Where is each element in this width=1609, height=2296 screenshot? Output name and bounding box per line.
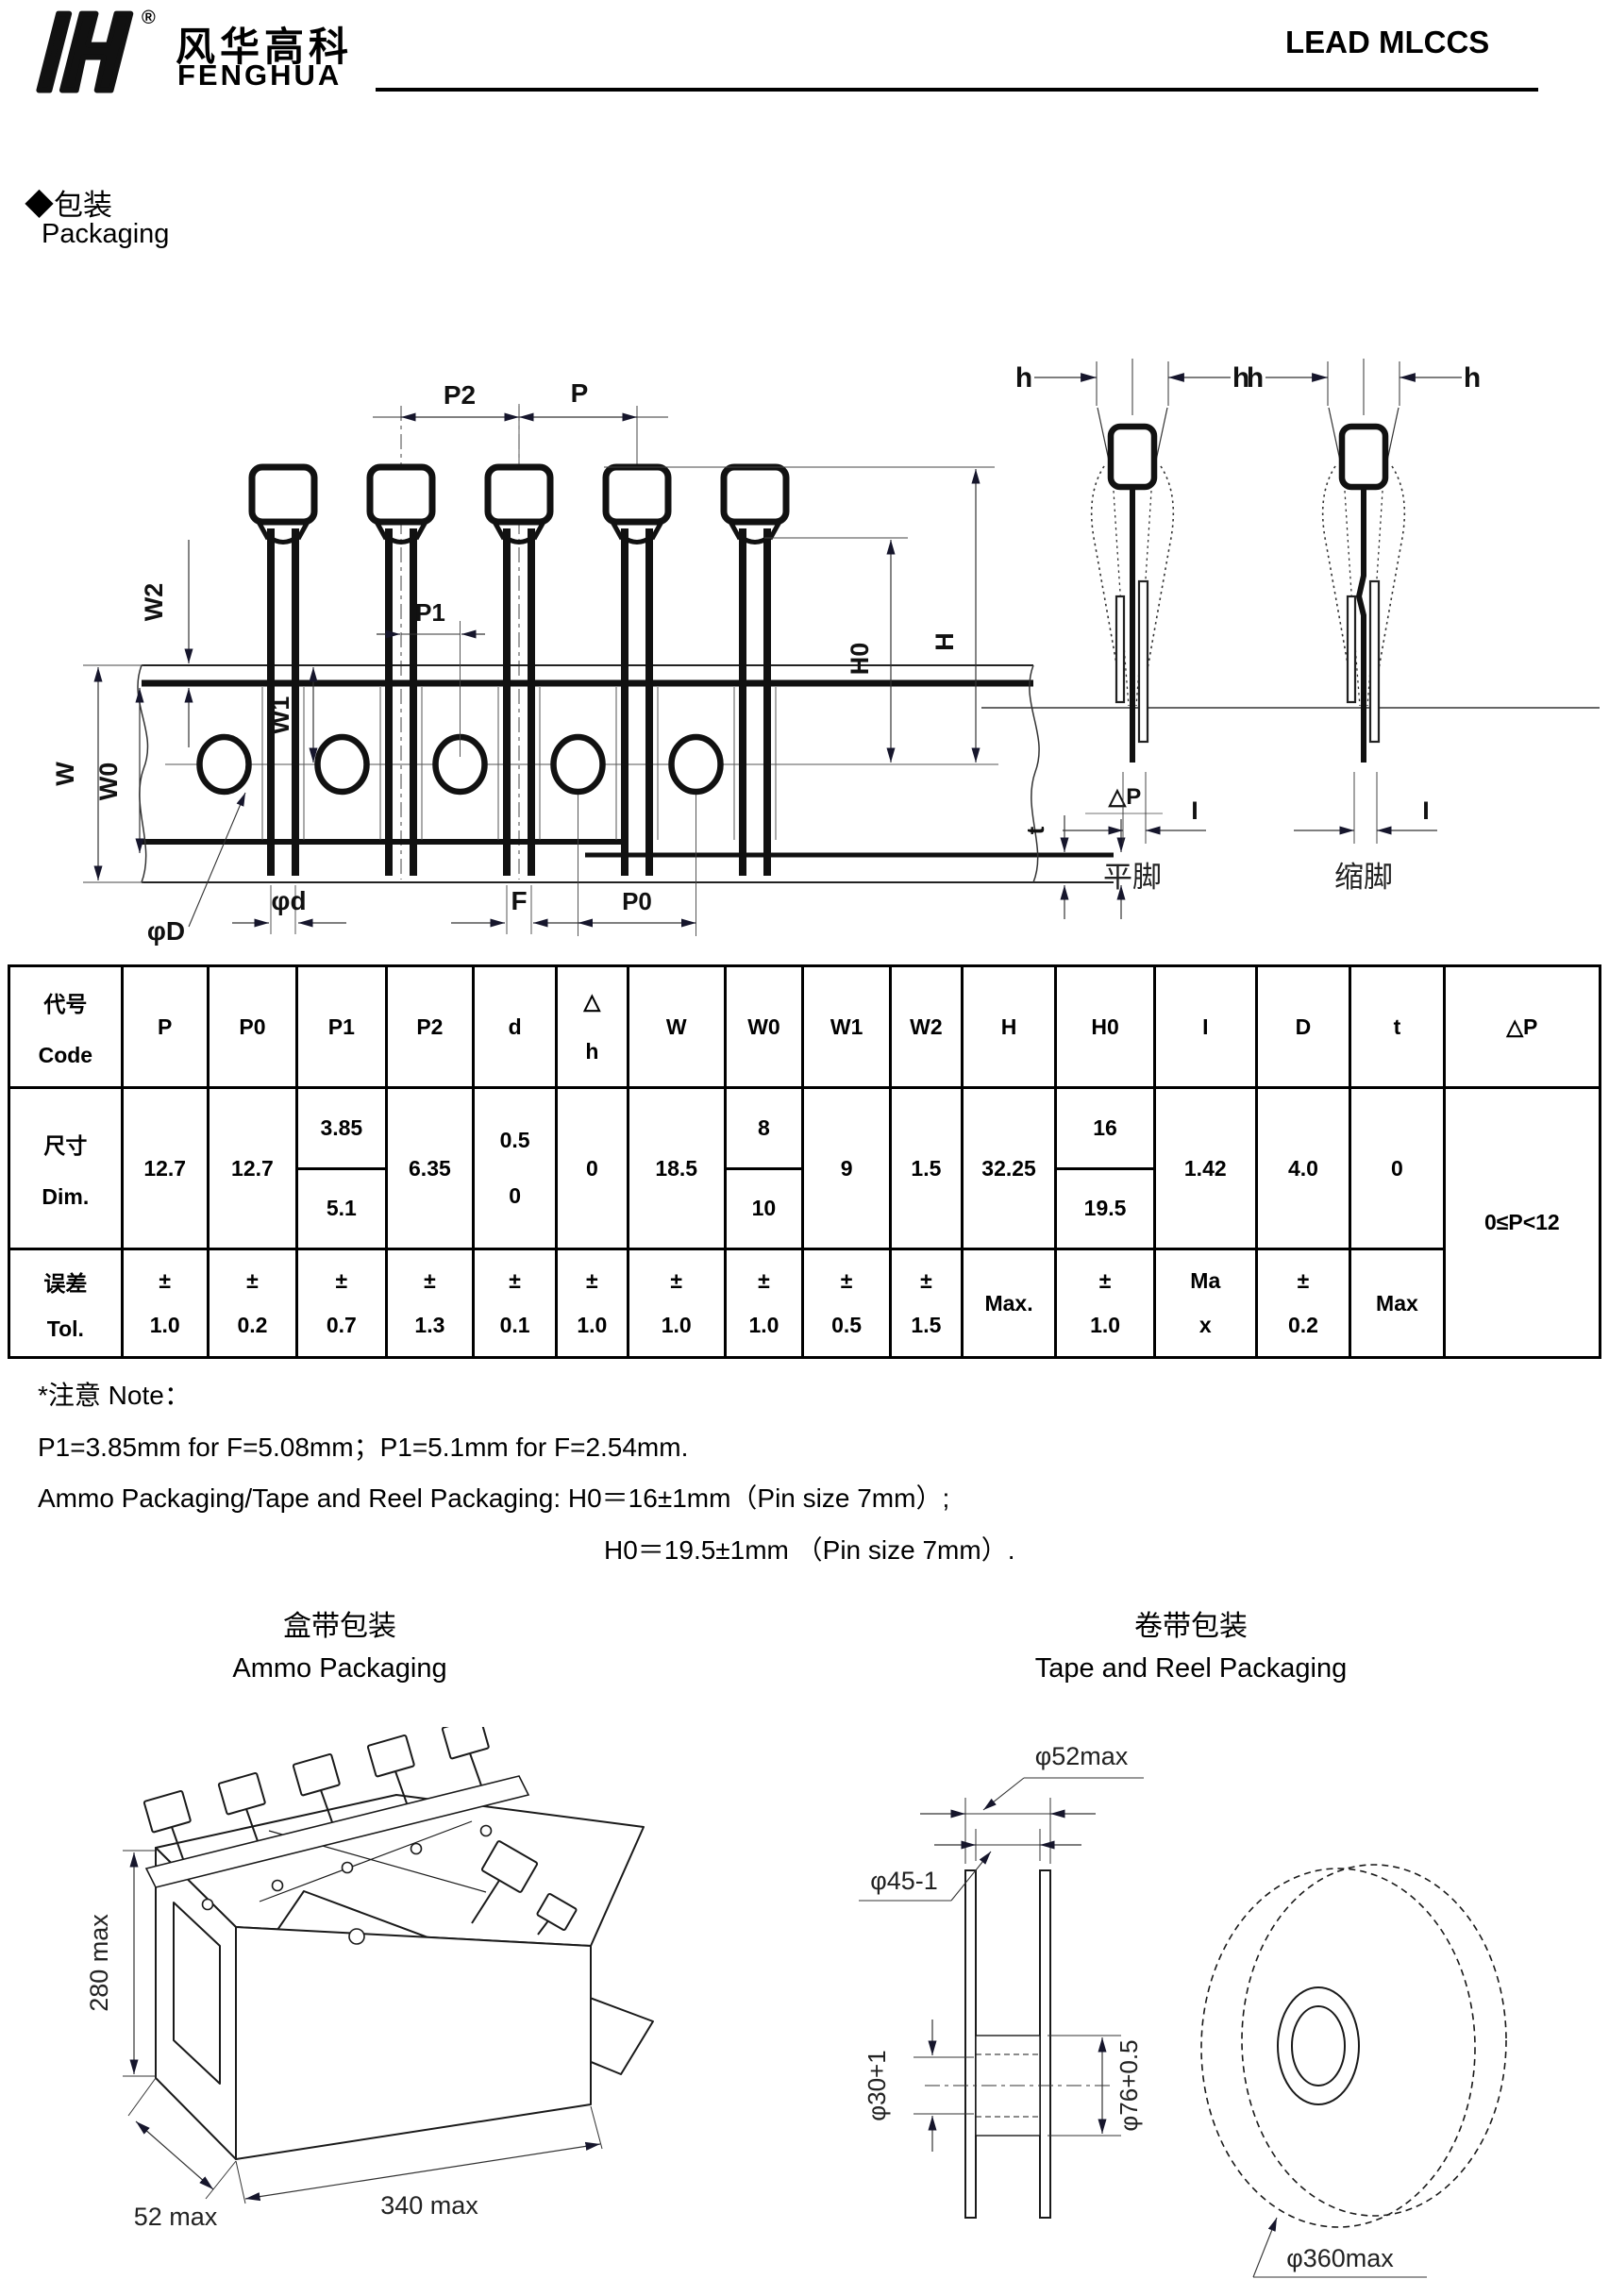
reel-bore: [1292, 2006, 1345, 2086]
ammo-title-cn: 盒带包装: [151, 1602, 528, 1644]
spec-cell: ±0.2: [208, 1249, 296, 1358]
extension-line: [206, 2161, 236, 2199]
tol-sign: ±: [841, 1268, 853, 1294]
spec-cell: 12.7: [208, 1088, 296, 1249]
extension-line: [591, 2106, 602, 2149]
dim-line2: 0: [509, 1183, 521, 1209]
spec-cell: △P: [1444, 966, 1600, 1088]
deck-hole: [349, 1929, 364, 1944]
sprocket-hole: [672, 737, 721, 792]
tol-sign: ±: [920, 1268, 932, 1294]
spec-cell: ±1.0: [122, 1249, 208, 1358]
tol-value: 1.3: [414, 1313, 444, 1338]
spec-cell: 12.7: [122, 1088, 208, 1249]
sprocket-hole: [554, 737, 603, 792]
dim-label-i: I: [1422, 796, 1430, 825]
component-body: [442, 1727, 489, 1759]
dim-depth: [136, 2121, 213, 2189]
spec-cell: t: [1350, 966, 1444, 1088]
tol-value: 0.2: [1288, 1313, 1318, 1338]
code-h: h: [585, 1039, 598, 1064]
tol-value: 1.0: [577, 1313, 607, 1338]
tol-value: 1.0: [748, 1313, 779, 1338]
dim-label-delta-p: △P: [1108, 784, 1141, 810]
tol-sign: ±: [424, 1268, 436, 1294]
dim-line1: 0.5: [500, 1128, 530, 1153]
tape-hole: [411, 1844, 422, 1854]
dim-label-w1: W1: [266, 696, 294, 735]
tol-value: 0.2: [237, 1313, 267, 1338]
dim-label-h: H: [930, 632, 959, 651]
spec-cell: △h: [556, 966, 628, 1088]
registered-mark: ®: [142, 8, 156, 29]
brand-name-en: FENGHUA: [177, 59, 342, 92]
spec-cell: 误差Tol.: [9, 1249, 123, 1358]
dim-label-w: W: [51, 762, 79, 786]
spec-cell: 尺寸Dim.: [9, 1088, 123, 1249]
reel-flange: [965, 1870, 976, 2218]
spec-cell: 32.25: [962, 1088, 1055, 1249]
spec-cell: P2: [386, 966, 474, 1088]
front-view-dimensions: P2 P P1 W2 W W0 W1 H0: [51, 378, 1163, 946]
spec-cell: ±1.5: [890, 1249, 962, 1358]
tape-front-view: [138, 406, 1114, 882]
dim-label-d76: φ76+0.5: [1115, 2039, 1143, 2131]
side-figure: [1265, 359, 1462, 844]
tol-sign: ±: [1298, 1268, 1310, 1294]
packaging-tape-diagram: P2 P P1 W2 W W0 W1 H0: [0, 264, 1609, 967]
spec-cell: P1: [297, 966, 386, 1088]
taped-component: [724, 467, 786, 876]
spec-cell: 0: [556, 1088, 628, 1249]
spec-cell: ±1.0: [556, 1249, 628, 1358]
side-views: h h h h I I 平脚 缩脚: [981, 359, 1600, 894]
dim-label-phi-d: φd: [271, 886, 306, 915]
dim-bottom: 5.1: [298, 1170, 384, 1249]
table-header-row: 代号Code P P0 P1 P2 d △h W W0 W1 W2 H H0 I…: [9, 966, 1601, 1088]
spec-cell: 1619.5: [1056, 1088, 1155, 1249]
tol-value: 0.5: [831, 1313, 862, 1338]
tol-label-cn: 误差: [43, 1265, 87, 1298]
ammo-title-en: Ammo Packaging: [151, 1653, 528, 1684]
dim-label-p0: P0: [622, 887, 652, 915]
tol-sign: ±: [670, 1268, 682, 1294]
dim-label-h0: H0: [846, 643, 874, 676]
header-rule: [376, 88, 1538, 92]
dim-bottom: 19.5: [1057, 1170, 1153, 1249]
reel-flange: [1040, 1870, 1050, 2218]
spec-cell: 代号Code: [9, 966, 123, 1088]
spec-cell: H: [962, 966, 1055, 1088]
spec-cell: D: [1256, 966, 1349, 1088]
spec-cell: P0: [208, 966, 296, 1088]
notes-block: *注意 Note： P1=3.85mm for F=5.08mm；P1=5.1m…: [38, 1370, 1548, 1576]
spec-cell: ±0.7: [297, 1249, 386, 1358]
dim-label-h-small: h: [1464, 362, 1481, 394]
dim-top: 3.85: [298, 1089, 384, 1170]
tol-sign: ±: [586, 1268, 598, 1294]
spec-cell: 0: [1350, 1088, 1444, 1249]
tol-value: 1.0: [150, 1313, 180, 1338]
box-front-face: [236, 1927, 591, 2159]
spec-cell: 1.5: [890, 1088, 962, 1249]
tol-sign: ±: [758, 1268, 770, 1294]
leader-line: [189, 793, 245, 927]
tape-hole: [273, 1881, 283, 1891]
spec-cell: ±1.3: [386, 1249, 474, 1358]
reel-front-view: φ360max: [1201, 1865, 1506, 2277]
spec-cell: 3.855.1: [297, 1088, 386, 1249]
spec-cell: Max: [1154, 1249, 1256, 1358]
dim-label-d360: φ360max: [1286, 2244, 1394, 2272]
tol-value: 1.5: [911, 1313, 941, 1338]
tol-value: 1.0: [1090, 1313, 1120, 1338]
datasheet-page: ® 风华高科 FENGHUA LEAD MLCCS ◆包装 Packaging: [0, 0, 1609, 2296]
dim-label-p: P: [571, 378, 589, 408]
spec-cell: I: [1154, 966, 1256, 1088]
dim-label-en: Dim.: [42, 1184, 89, 1210]
dim-top: 16: [1057, 1089, 1153, 1170]
spec-cell: 0.50: [474, 1088, 557, 1249]
spec-cell: 9: [803, 1088, 891, 1249]
spec-cell-merged: 0≤P<12: [1444, 1088, 1600, 1358]
spec-cell: ±0.2: [1256, 1249, 1349, 1358]
dim-label-p1: P1: [415, 598, 445, 627]
caption-flat-leg: 平脚: [1103, 861, 1162, 894]
spec-cell: W: [628, 966, 725, 1088]
dim-label-w2: W2: [140, 583, 168, 622]
crimped-leg-lead: [1359, 487, 1364, 763]
spec-cell: d: [474, 966, 557, 1088]
component-body: [367, 1735, 414, 1777]
spec-cell: 1.42: [1154, 1088, 1256, 1249]
tape-hole: [203, 1900, 213, 1910]
dim-label-h-small: h: [1015, 362, 1032, 394]
tol-sign: ±: [246, 1268, 259, 1294]
spec-cell: ±0.1: [474, 1249, 557, 1358]
dim-label-cn: 尺寸: [43, 1128, 87, 1160]
note-line-2: Ammo Packaging/Tape and Reel Packaging: …: [38, 1473, 1548, 1525]
document-title: LEAD MLCCS: [1285, 25, 1489, 60]
spec-cell: Max.: [962, 1249, 1055, 1358]
reel-side-view: φ52max φ45-1 φ30+1 φ76+0.5: [859, 1742, 1144, 2218]
caption-crimped-leg: 缩脚: [1334, 861, 1393, 894]
sprocket-hole: [200, 737, 249, 792]
side-view-crimped-leg: [1265, 359, 1462, 844]
leader-line: [983, 1778, 1024, 1810]
tol-line2: x: [1199, 1313, 1212, 1338]
component-stem: [470, 1753, 481, 1785]
note-line-1: P1=3.85mm for F=5.08mm；P1=5.1mm for F=2.…: [38, 1422, 1548, 1474]
component-body: [293, 1754, 340, 1796]
extension-line: [236, 2161, 245, 2204]
dim-label-d45: φ45-1: [870, 1867, 938, 1895]
dim-label-t: t: [1021, 826, 1049, 834]
tape-and-reel-diagram: φ52max φ45-1 φ30+1 φ76+0.5: [830, 1708, 1585, 2293]
dim-label-w0: W0: [94, 763, 123, 801]
tol-sign: ±: [336, 1268, 348, 1294]
packaging-spec-table: 代号Code P P0 P1 P2 d △h W W0 W1 W2 H H0 I…: [8, 964, 1601, 1359]
taped-component: [252, 467, 314, 876]
section-title-en: Packaging: [42, 219, 169, 250]
sprocket-hole: [318, 737, 367, 792]
dim-label-i: I: [1191, 796, 1198, 825]
spec-cell: W0: [725, 966, 803, 1088]
note-title: *注意 Note：: [38, 1370, 1548, 1422]
dim-bottom: 10: [727, 1170, 802, 1249]
dim-label-phi-D: φD: [147, 916, 185, 946]
tol-sign: ±: [509, 1268, 521, 1294]
dim-label-p2: P2: [444, 380, 476, 410]
dim-label-height: 280 max: [85, 1914, 113, 2012]
spec-cell: 810: [725, 1088, 803, 1249]
tol-sign: ±: [159, 1268, 171, 1294]
table-dimension-row: 尺寸Dim. 12.7 12.7 3.855.1 6.35 0.50 0 18.…: [9, 1088, 1601, 1249]
spec-cell: H0: [1056, 966, 1155, 1088]
code-delta: △: [584, 989, 601, 1014]
side-view-flat-leg: [1034, 359, 1231, 844]
tape-hole: [343, 1863, 353, 1873]
tol-value: 0.1: [500, 1313, 530, 1338]
table-tolerance-row: 误差Tol. ±1.0 ±0.2 ±0.7 ±1.3 ±0.1 ±1.0 ±1.…: [9, 1249, 1601, 1358]
corner-en: Code: [39, 1043, 93, 1068]
reel-title-cn: 卷带包装: [955, 1602, 1427, 1644]
spec-cell: P: [122, 966, 208, 1088]
spec-cell: 6.35: [386, 1088, 474, 1249]
tol-sign: ±: [1099, 1268, 1112, 1294]
spec-cell: W2: [890, 966, 962, 1088]
fenghua-logo-icon: [26, 8, 138, 98]
component-body: [218, 1773, 265, 1815]
dim-label-d30: φ30+1: [863, 2050, 891, 2120]
spec-cell: ±1.0: [628, 1249, 725, 1358]
spec-cell: Max: [1350, 1249, 1444, 1358]
corner-cn: 代号: [43, 986, 87, 1018]
dim-top: 8: [727, 1089, 802, 1170]
dim-label-f: F: [511, 886, 527, 915]
torn-edge-right: [1030, 665, 1039, 882]
section-title-cn: ◆包装: [25, 181, 112, 224]
spec-cell: 4.0: [1256, 1088, 1349, 1249]
taped-component: [606, 467, 668, 876]
spec-cell: W1: [803, 966, 891, 1088]
dim-label-width: 340 max: [380, 2191, 478, 2220]
tol-value: 1.0: [662, 1313, 692, 1338]
reel-title-en: Tape and Reel Packaging: [955, 1653, 1427, 1684]
tol-value: 0.7: [327, 1313, 357, 1338]
ammo-packaging-diagram: 280 max 52 max 340 max: [66, 1727, 727, 2274]
note-line-3: H0＝19.5±1mm （Pin size 7mm）.: [604, 1525, 1548, 1577]
spec-cell: ±0.5: [803, 1249, 891, 1358]
tape-hole: [481, 1826, 492, 1836]
spec-cell: ±1.0: [725, 1249, 803, 1358]
leader-line: [1253, 2218, 1277, 2277]
spec-cell: 18.5: [628, 1088, 725, 1249]
dim-label-depth: 52 max: [134, 2203, 218, 2231]
spec-cell: ±1.0: [1056, 1249, 1155, 1358]
dim-label-d52: φ52max: [1035, 1742, 1129, 1770]
component-body: [143, 1791, 191, 1833]
extension-line: [128, 2078, 156, 2116]
tol-line1: Ma: [1190, 1268, 1220, 1294]
tol-label-en: Tol.: [47, 1316, 84, 1342]
dim-label-h-small: h: [1247, 362, 1264, 394]
logo-h: [62, 13, 131, 90]
